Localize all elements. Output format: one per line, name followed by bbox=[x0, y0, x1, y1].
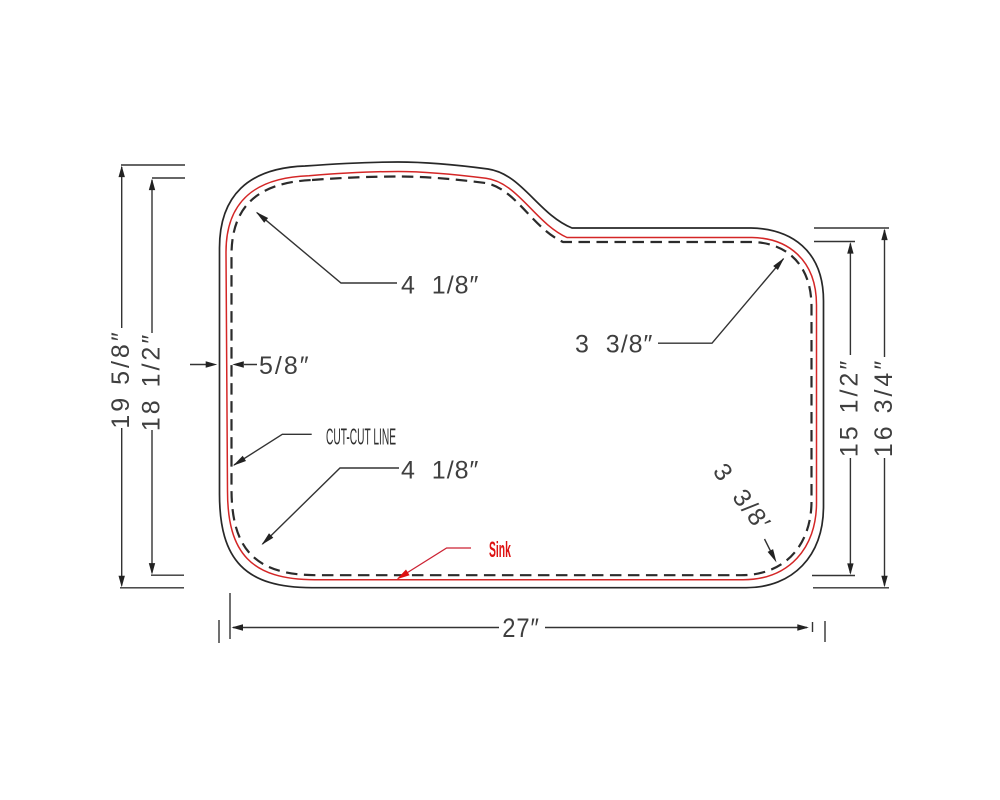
svg-text:CUT-CUT LINE: CUT-CUT LINE bbox=[326, 424, 396, 450]
svg-text:16 3/4″: 16 3/4″ bbox=[870, 358, 898, 457]
svg-text:3 3/8″: 3 3/8″ bbox=[575, 331, 653, 359]
svg-text:5/8″: 5/8″ bbox=[259, 352, 311, 380]
svg-text:Sink: Sink bbox=[489, 537, 511, 563]
svg-text:18 1/2″: 18 1/2″ bbox=[138, 332, 166, 431]
svg-text:27″: 27″ bbox=[502, 614, 539, 644]
svg-text:15 1/2″: 15 1/2″ bbox=[836, 358, 864, 457]
svg-text:4 1/8″: 4 1/8″ bbox=[401, 456, 479, 484]
svg-text:19 5/8″: 19 5/8″ bbox=[107, 329, 135, 428]
svg-text:4 1/8″: 4 1/8″ bbox=[401, 271, 479, 299]
